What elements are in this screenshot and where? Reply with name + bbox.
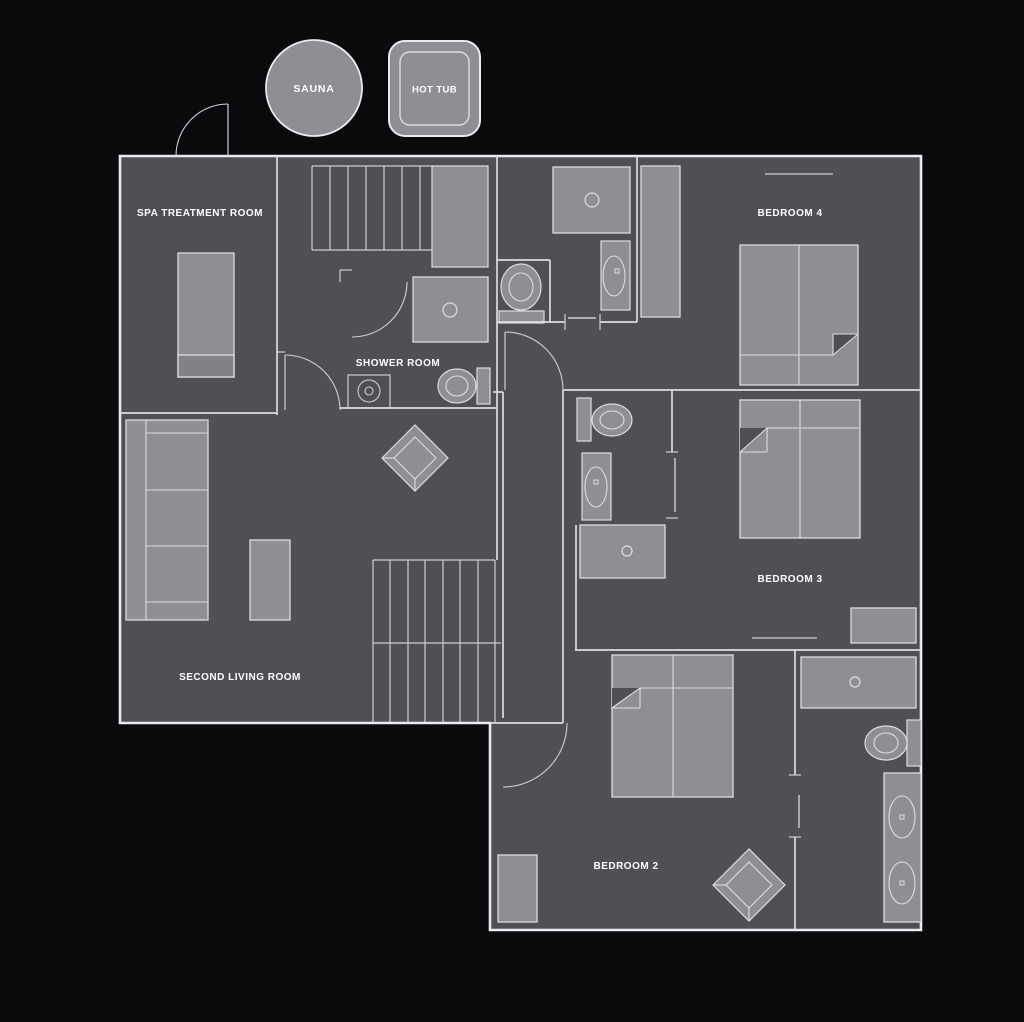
hot-tub-label: HOT TUB [412,85,457,96]
shower-tray-hall [413,277,488,342]
stair-landing [432,166,488,267]
floor-plan: SAUNAHOT TUBSPA TREATMENT ROOMSHOWER ROO… [0,0,1024,1022]
vanity-top [601,241,630,310]
toilet-ensuite3-tank [577,398,591,441]
chest-bedroom3 [851,608,916,643]
sauna-label: SAUNA [293,83,334,95]
room-label-bedroom-4: BEDROOM 4 [757,208,822,219]
room-label-bedroom-2: BEDROOM 2 [593,861,658,872]
toilet-hall-tank [477,368,490,404]
toilet-ensuite2-tank [907,720,921,766]
sofa [126,420,208,620]
door-swing-arc [176,104,228,156]
room-label-bedroom-3: BEDROOM 3 [757,574,822,585]
room-label-shower-room: SHOWER ROOM [356,358,440,369]
ottoman [250,540,290,620]
toilet-ensuite3-bowl [592,404,632,436]
toilet-ensuite2-bowl [865,726,907,760]
room-label-spa-treatment-room: SPA TREATMENT ROOM [137,208,263,219]
floor-plan-svg: SAUNAHOT TUBSPA TREATMENT ROOMSHOWER ROO… [0,0,1024,1022]
wardrobe-bedroom4 [641,166,680,317]
shower-tray-top [553,167,630,233]
nightstand-bedroom2 [498,855,537,922]
room-label-second-living-room: SECOND LIVING ROOM [179,672,301,683]
massage-table-foot [178,355,234,377]
toilet-hall-bowl [438,369,476,403]
shower-tray-ensuite2 [801,657,916,708]
toilet-wc-bowl [501,264,541,310]
double-vanity-ensuite2 [884,773,921,922]
